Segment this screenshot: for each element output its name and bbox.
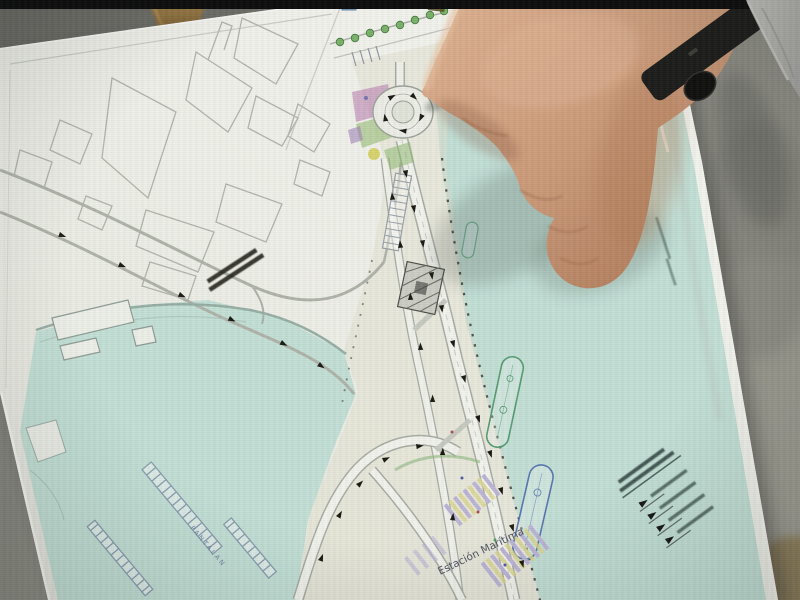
- map-dot: [461, 477, 464, 480]
- tree-symbol: [366, 29, 374, 37]
- parcel-yellow: [368, 148, 380, 160]
- site-plan-photo: Estación Marítima PANTALAN: [0, 0, 800, 600]
- parcel-dot: [364, 96, 368, 100]
- roundabout-island: [392, 101, 414, 123]
- tree-symbol: [396, 21, 404, 29]
- tree-symbol: [351, 34, 359, 42]
- tree-symbol: [381, 25, 389, 33]
- building-core: [414, 281, 428, 295]
- tree-symbol: [411, 16, 419, 24]
- letterbox-bar: [0, 0, 800, 9]
- tree-symbol: [426, 11, 434, 19]
- marina-dock: [132, 326, 156, 346]
- tree-symbol: [336, 38, 344, 46]
- map-dot: [504, 564, 507, 567]
- map-dot: [451, 431, 454, 434]
- news-photo-hand-pointing-at-port-plan: Estación Marítima PANTALAN: [0, 0, 800, 600]
- map-dot: [477, 511, 480, 514]
